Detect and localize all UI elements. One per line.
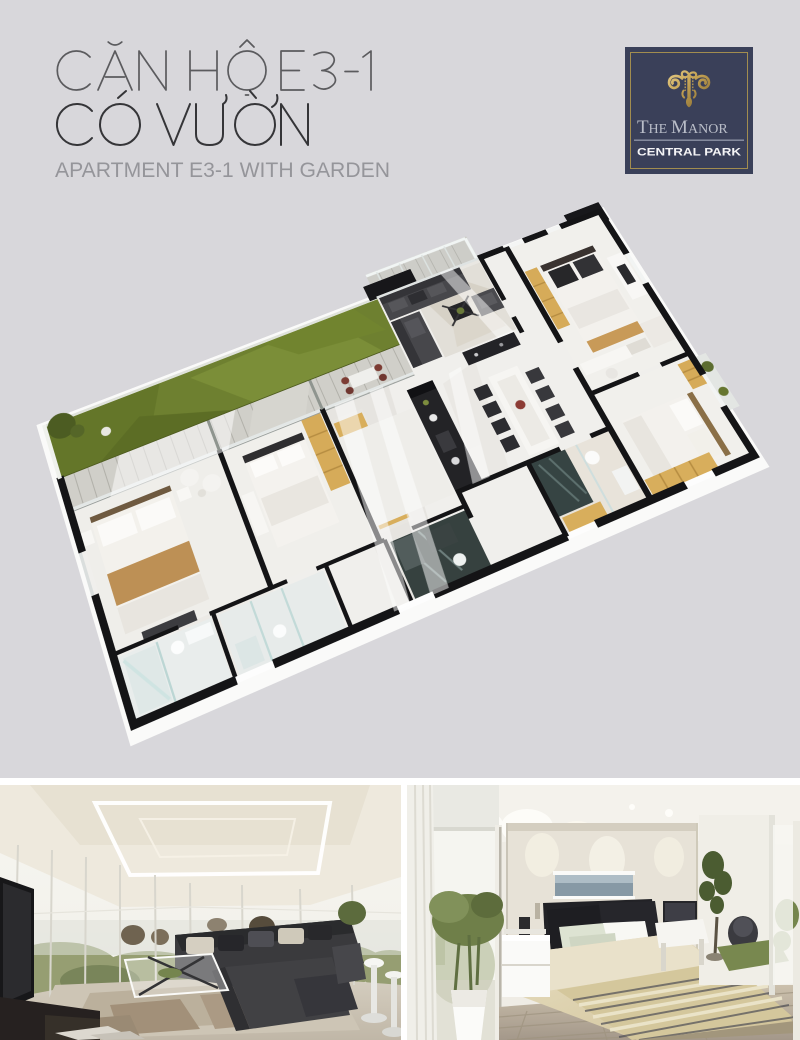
svg-text:M: M (671, 117, 688, 138)
svg-text:CENTRAL PARK: CENTRAL PARK (637, 147, 741, 159)
svg-text:HE: HE (649, 122, 668, 137)
svg-text:APARTMENT E3-1 WITH GARDEN: APARTMENT E3-1 WITH GARDEN (55, 159, 390, 182)
svg-text:T: T (637, 117, 649, 138)
svg-text:ANOR: ANOR (688, 122, 728, 137)
